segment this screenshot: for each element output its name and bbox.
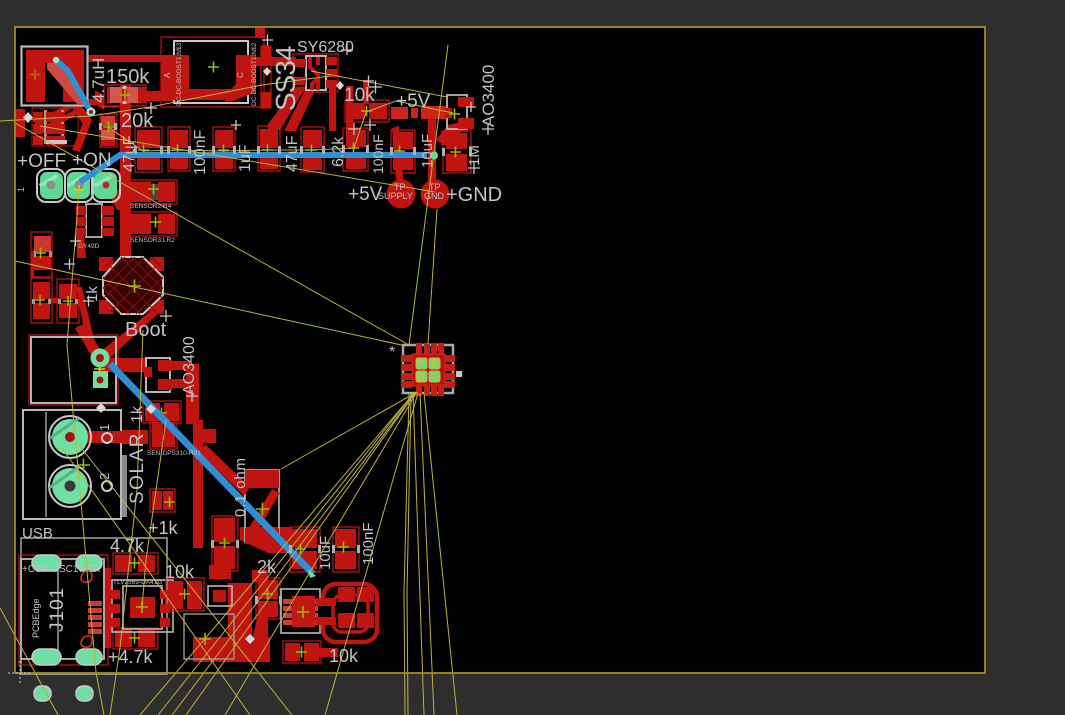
svg-text:SS34: SS34 [270,46,301,111]
svg-text:SY6280: SY6280 [297,39,354,56]
svg-text:20k: 20k [121,110,154,132]
svg-text:1k: 1k [129,405,146,423]
svg-text:+4.7k: +4.7k [108,647,154,667]
svg-text:1: 1 [16,187,26,192]
svg-text:4.7uH: 4.7uH [89,58,108,103]
svg-text:SUPPLY: SUPPLY [378,191,413,201]
svg-text:6.2k: 6.2k [330,136,347,167]
svg-text:1k: 1k [84,286,101,302]
svg-text:10uF: 10uF [317,536,334,570]
svg-text:DC-DC-BOOST1:N$3: DC-DC-BOOST1:N$3 [176,42,183,106]
svg-text:2: 2 [97,473,112,480]
svg-text:+1k: +1k [148,518,179,538]
svg-text:100nF: 100nF [192,129,209,175]
svg-text:DC-DC-BOOST1:N$2: DC-DC-BOOST1:N$2 [251,42,258,106]
svg-text:AO3400: AO3400 [479,65,498,127]
svg-text:A: A [163,72,172,78]
svg-text:GY49D: GY49D [78,243,100,250]
svg-text:SENSOR2:R4: SENSOR2:R4 [130,203,172,210]
svg-text:10k: 10k [329,646,359,666]
svg-text:+GND: +GND [446,184,502,206]
svg-text:SOLAR: SOLAR [127,432,148,504]
svg-text:1uF: 1uF [237,144,254,172]
svg-text:AO3400: AO3400 [181,336,198,395]
svg-text:C: C [236,72,245,78]
svg-text:2k: 2k [257,557,277,577]
svg-text:*: * [389,344,395,361]
svg-text:USB: USB [22,525,53,542]
svg-text:47uF: 47uF [284,135,301,172]
svg-text:100nF: 100nF [360,522,377,565]
svg-text:10k: 10k [344,85,375,106]
svg-text:+OFF: +OFF [17,151,66,172]
svg-text:+5V: +5V [396,91,431,112]
svg-text:+CSP-USC16-TR: +CSP-USC16-TR [22,564,101,575]
svg-text:10uF: 10uF [419,134,436,168]
svg-text:GND: GND [424,191,445,201]
svg-text:J101: J101 [47,587,68,632]
svg-text:SENSOR3:LR2: SENSOR3:LR2 [130,237,175,244]
svg-text:SEN-DPS310-R01: SEN-DPS310-R01 [147,450,201,457]
svg-text:47uF: 47uF [121,135,138,172]
svg-text:PCBEdge: PCBEdge [31,598,41,638]
svg-text:TLV2569-DA41G: TLV2569-DA41G [113,579,162,586]
svg-text:Boot: Boot [125,319,167,341]
svg-text:4.7k: 4.7k [110,536,145,556]
svg-text:+ON: +ON [72,150,112,171]
svg-text:100nF: 100nF [370,134,386,174]
svg-text:10k: 10k [165,562,195,582]
svg-text:0.1 ohm: 0.1 ohm [232,457,249,517]
svg-text:150k: 150k [106,66,150,88]
svg-text:1: 1 [97,424,112,431]
